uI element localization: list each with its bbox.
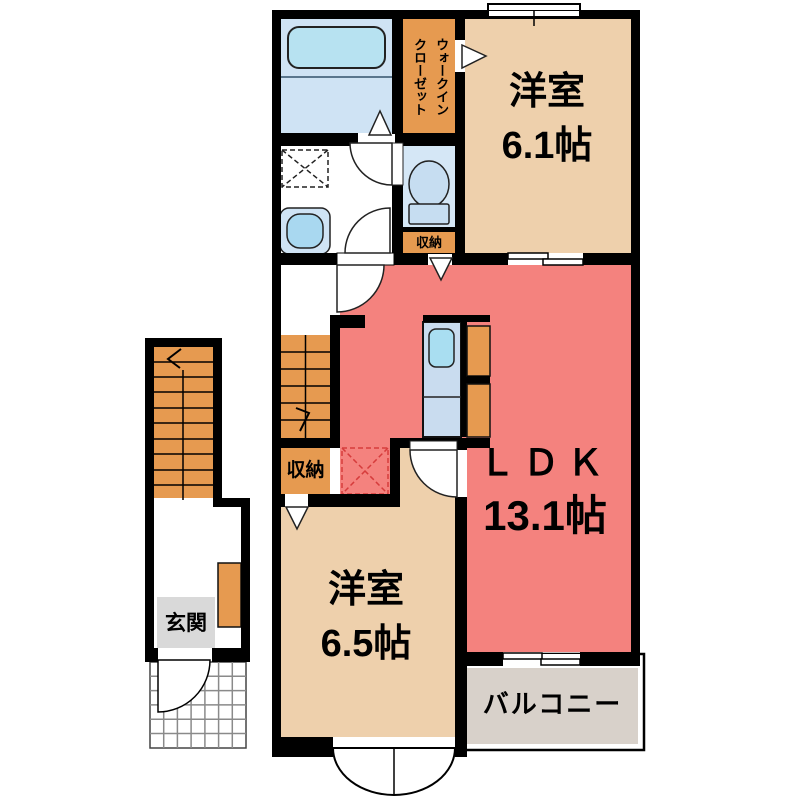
sliding-door-icon: [543, 259, 583, 265]
bathroom: [281, 19, 392, 133]
toilet-room: [403, 146, 455, 227]
sliding-door-icon: [508, 253, 548, 259]
ldk-name: ＬＤＫ: [479, 442, 611, 483]
ldk-size: 13.1帖: [455, 493, 635, 539]
bay-window-icon: [333, 738, 455, 795]
kitchen-sink-icon: [429, 329, 454, 367]
washroom-door-leaf: [337, 253, 394, 265]
wic-label-col-left: クローゼット: [408, 38, 430, 116]
kitchen-icon: [423, 322, 490, 437]
balcony-sliding-door-icon: [541, 659, 580, 665]
entrance-door-opening: [158, 649, 212, 661]
interior-stairs: [281, 335, 330, 438]
floorplan-drawing: [0, 0, 800, 800]
storage-lower-door-opening: [285, 495, 308, 506]
walk-in-closet-label: ウォークイン クローゼット: [404, 22, 456, 132]
bedroom1-name: 洋室: [509, 71, 585, 113]
bedroom2-name: 洋室: [328, 569, 404, 611]
balcony-label: バルコニー: [460, 690, 645, 719]
toilet-icon: [409, 161, 449, 224]
bathtub-icon: [288, 27, 385, 68]
ldk-label: ＬＤＫ 13.1帖: [455, 443, 635, 539]
storage-upper-label: 収納: [403, 236, 455, 250]
bedroom1-label: 洋室 6.1帖: [462, 72, 632, 168]
wic-label-col-right: ウォークイン: [430, 38, 452, 116]
bedroom2-size: 6.5帖: [276, 624, 456, 666]
storage-lower-label: 収納: [281, 461, 330, 482]
floorplan-page: 洋室 6.1帖 ＬＤＫ 13.1帖 洋室 6.5帖 バルコニー 玄関 収納 収納…: [0, 0, 800, 800]
toilet-door-leaf: [392, 143, 403, 185]
vanity-sink-icon: [280, 208, 330, 254]
refrigerator-space-icon: [467, 326, 490, 376]
bedroom2-label: 洋室 6.5帖: [276, 570, 456, 666]
bedroom1-size: 6.1帖: [462, 126, 632, 168]
bedroom2-door-leaf: [410, 441, 457, 450]
hallway: [281, 265, 330, 335]
entrance-label: 玄関: [150, 612, 222, 635]
balcony-sliding-door-icon: [503, 653, 542, 659]
exterior-stairs: [154, 347, 213, 500]
